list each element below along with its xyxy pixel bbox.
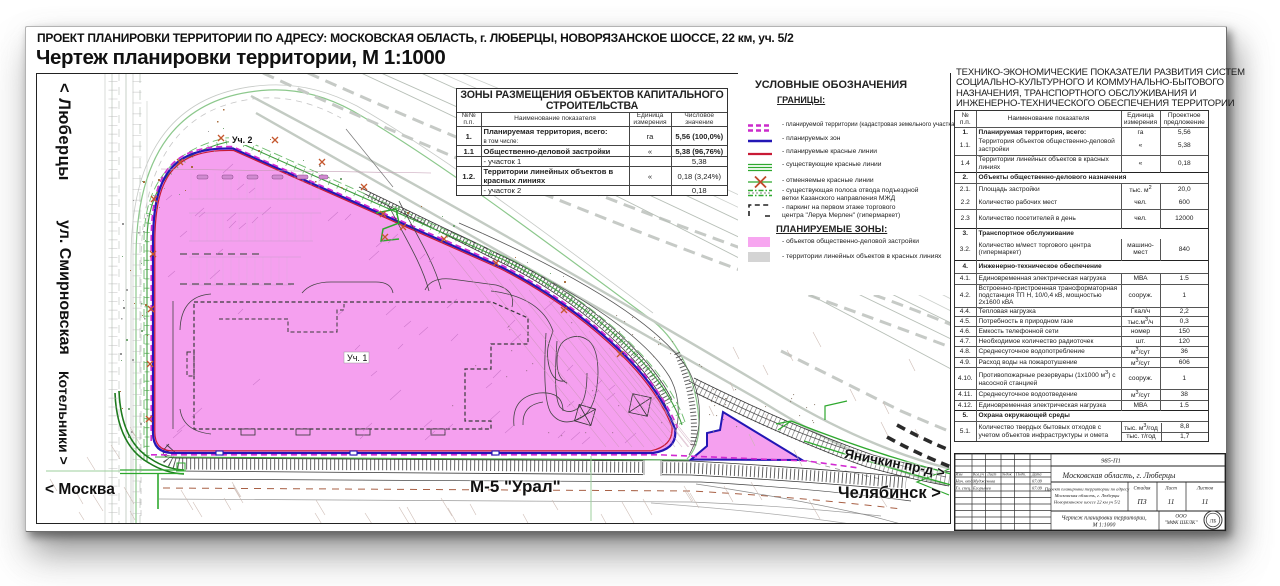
svg-text:ЛБ: ЛБ bbox=[1210, 518, 1217, 524]
svg-text:Нач. отд.: Нач. отд. bbox=[955, 479, 974, 484]
svg-text:Новорязанское шоссе 22 км уч 5: Новорязанское шоссе 22 км уч 5/2 bbox=[1053, 500, 1121, 505]
svg-text:Лист: Лист bbox=[986, 472, 996, 477]
svg-text:М 1:1000: М 1:1000 bbox=[1092, 523, 1116, 529]
svg-text:Уч. 2: Уч. 2 bbox=[232, 135, 252, 145]
svg-text:ООО: ООО bbox=[1175, 514, 1186, 520]
svg-text:Чертеж планировки территории,: Чертеж планировки территории, bbox=[1061, 516, 1147, 522]
svg-text:Лист: Лист bbox=[1164, 487, 1177, 492]
svg-text:Изм: Изм bbox=[955, 472, 963, 477]
svg-text:Гл. спец.: Гл. спец. bbox=[955, 486, 972, 491]
svg-text:Подп.: Подп. bbox=[1015, 472, 1026, 477]
svg-text:Кол.уч: Кол.уч bbox=[972, 472, 984, 477]
svg-text:№док: №док bbox=[1001, 472, 1012, 477]
svg-text:Егорычев: Егорычев bbox=[972, 486, 991, 491]
svg-text:985-П1: 985-П1 bbox=[1101, 458, 1121, 465]
svg-text:ПЗ: ПЗ bbox=[1136, 497, 1146, 506]
svg-text:Дата: Дата bbox=[1031, 472, 1041, 477]
svg-text:07.09: 07.09 bbox=[1032, 486, 1043, 491]
svg-text:"МФК ШЕЛК": "МФК ШЕЛК" bbox=[1165, 520, 1199, 526]
svg-text:07.09: 07.09 bbox=[1032, 479, 1043, 484]
svg-text:Уч. 1: Уч. 1 bbox=[347, 353, 367, 363]
svg-text:Стадия: Стадия bbox=[1134, 487, 1152, 492]
svg-text:Московская область, г. Люберцы: Московская область, г. Люберцы bbox=[1062, 471, 1177, 480]
svg-text:Проект планировки территории п: Проект планировки территории по адресу bbox=[1044, 487, 1130, 492]
svg-text:11: 11 bbox=[1202, 497, 1209, 506]
svg-text:Листов: Листов bbox=[1196, 487, 1214, 492]
svg-text:Мудженова: Мудженова bbox=[972, 479, 996, 484]
svg-text:11: 11 bbox=[1168, 497, 1175, 506]
